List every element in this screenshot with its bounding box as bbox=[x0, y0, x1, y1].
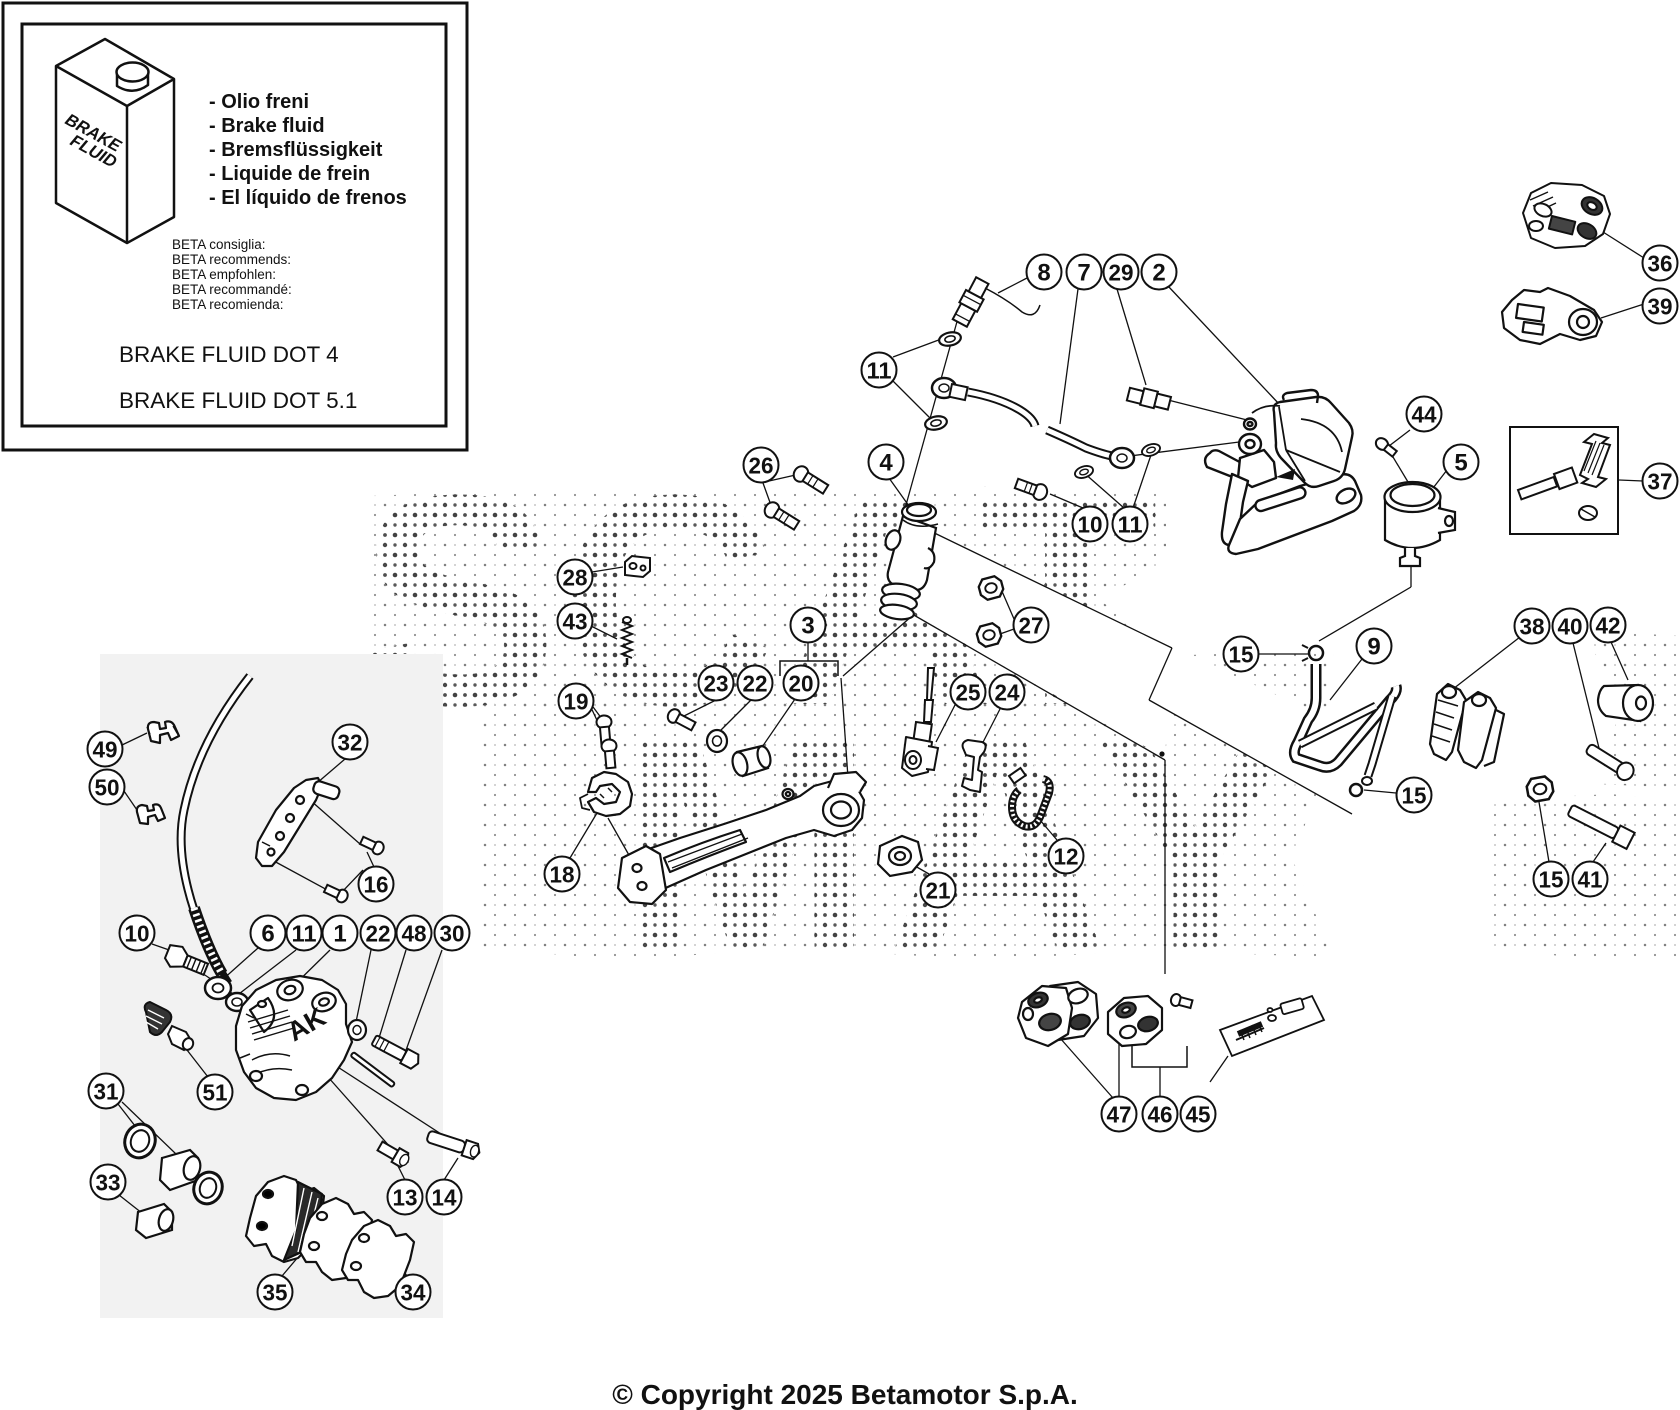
svg-text:37: 37 bbox=[1648, 469, 1673, 495]
svg-text:40: 40 bbox=[1558, 614, 1583, 640]
svg-text:51: 51 bbox=[203, 1080, 228, 1106]
svg-text:14: 14 bbox=[432, 1185, 457, 1211]
svg-text:26: 26 bbox=[749, 453, 774, 479]
svg-text:32: 32 bbox=[338, 730, 363, 756]
svg-text:39: 39 bbox=[1648, 294, 1673, 320]
svg-text:24: 24 bbox=[995, 680, 1020, 706]
svg-text:22: 22 bbox=[743, 671, 768, 697]
svg-text:- El líquido de frenos: - El líquido de frenos bbox=[209, 187, 407, 209]
svg-text:33: 33 bbox=[96, 1170, 121, 1196]
svg-text:12: 12 bbox=[1054, 844, 1079, 870]
svg-text:BETA recommandé:: BETA recommandé: bbox=[172, 282, 292, 297]
svg-text:11: 11 bbox=[867, 358, 892, 384]
svg-text:3: 3 bbox=[801, 613, 814, 640]
svg-text:BETA recommends:: BETA recommends: bbox=[172, 252, 291, 267]
svg-text:38: 38 bbox=[1520, 614, 1545, 640]
svg-text:46: 46 bbox=[1148, 1102, 1173, 1128]
svg-text:11: 11 bbox=[1118, 512, 1143, 538]
svg-text:© Copyright 2025 Betamotor S.p: © Copyright 2025 Betamotor S.p.A. bbox=[612, 1379, 1078, 1410]
svg-text:15: 15 bbox=[1229, 642, 1254, 668]
svg-text:10: 10 bbox=[1078, 512, 1103, 538]
svg-text:15: 15 bbox=[1539, 867, 1564, 893]
svg-text:23: 23 bbox=[704, 671, 729, 697]
svg-text:5: 5 bbox=[1454, 450, 1467, 477]
svg-text:- Olio freni: - Olio freni bbox=[209, 91, 309, 113]
svg-text:35: 35 bbox=[263, 1280, 288, 1306]
svg-text:29: 29 bbox=[1109, 260, 1134, 286]
svg-text:34: 34 bbox=[401, 1280, 426, 1306]
svg-text:49: 49 bbox=[93, 737, 118, 763]
svg-text:11: 11 bbox=[292, 921, 317, 947]
svg-text:10: 10 bbox=[125, 921, 150, 947]
svg-text:2: 2 bbox=[1152, 260, 1165, 287]
svg-text:- Liquide de frein: - Liquide de frein bbox=[209, 163, 370, 185]
svg-text:44: 44 bbox=[1412, 402, 1437, 428]
svg-text:21: 21 bbox=[926, 878, 951, 904]
svg-text:6: 6 bbox=[261, 921, 274, 948]
svg-text:20: 20 bbox=[789, 671, 814, 697]
svg-text:BRAKE FLUID DOT 5.1: BRAKE FLUID DOT 5.1 bbox=[119, 388, 357, 413]
svg-text:- Brake fluid: - Brake fluid bbox=[209, 115, 325, 137]
svg-text:BETA consiglia:: BETA consiglia: bbox=[172, 237, 266, 252]
svg-text:41: 41 bbox=[1578, 867, 1603, 893]
svg-text:7: 7 bbox=[1077, 260, 1090, 287]
svg-text:1: 1 bbox=[333, 921, 346, 948]
svg-text:36: 36 bbox=[1648, 251, 1673, 277]
svg-text:50: 50 bbox=[95, 775, 120, 801]
svg-text:22: 22 bbox=[366, 921, 391, 947]
svg-text:- Bremsflüssigkeit: - Bremsflüssigkeit bbox=[209, 139, 383, 161]
svg-text:4: 4 bbox=[879, 450, 893, 477]
svg-text:25: 25 bbox=[956, 680, 981, 706]
svg-text:9: 9 bbox=[1367, 634, 1380, 661]
svg-text:18: 18 bbox=[550, 862, 575, 888]
svg-text:16: 16 bbox=[364, 872, 389, 898]
svg-text:15: 15 bbox=[1402, 783, 1427, 809]
svg-text:43: 43 bbox=[563, 609, 588, 635]
svg-text:45: 45 bbox=[1186, 1102, 1211, 1128]
svg-text:48: 48 bbox=[402, 921, 427, 947]
svg-text:BRAKE FLUID DOT 4: BRAKE FLUID DOT 4 bbox=[119, 342, 339, 367]
svg-text:BETA recomienda:: BETA recomienda: bbox=[172, 297, 284, 312]
svg-text:47: 47 bbox=[1107, 1102, 1132, 1128]
svg-text:13: 13 bbox=[393, 1185, 418, 1211]
svg-text:42: 42 bbox=[1596, 613, 1621, 639]
svg-text:30: 30 bbox=[440, 921, 465, 947]
svg-text:BETA empfohlen:: BETA empfohlen: bbox=[172, 267, 276, 282]
svg-text:28: 28 bbox=[563, 565, 588, 591]
svg-text:31: 31 bbox=[94, 1079, 119, 1105]
svg-text:27: 27 bbox=[1019, 613, 1044, 639]
svg-text:8: 8 bbox=[1037, 260, 1050, 287]
svg-text:19: 19 bbox=[564, 689, 589, 715]
